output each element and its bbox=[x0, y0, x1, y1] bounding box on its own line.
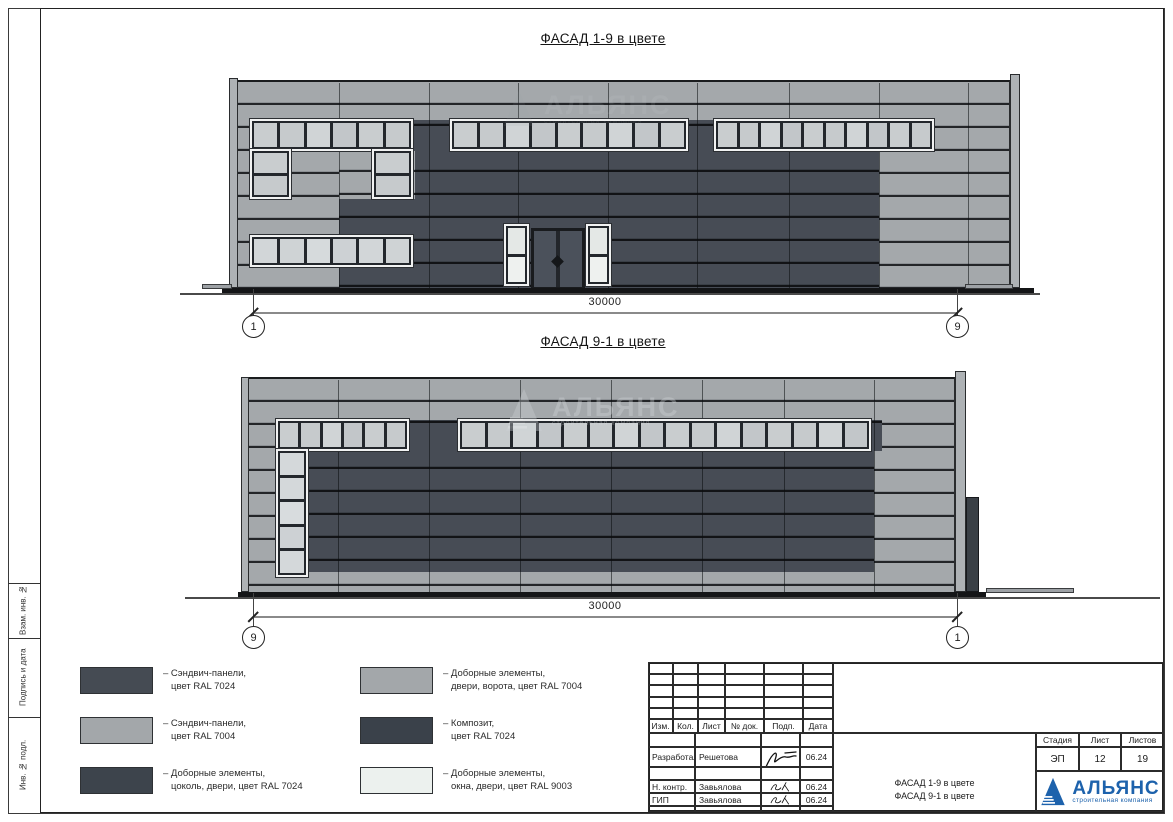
window-pane bbox=[344, 423, 362, 447]
stamp-signature-cell bbox=[761, 793, 800, 806]
facade-panel-dark bbox=[307, 451, 874, 572]
stamp-sheet-header: Лист bbox=[1079, 733, 1121, 747]
facade-top-title: ФАСАД 1-9 в цвете bbox=[438, 31, 768, 46]
change-table-cell bbox=[725, 697, 764, 708]
corner-trim bbox=[229, 78, 238, 288]
window-pane bbox=[333, 239, 356, 263]
window-band bbox=[250, 149, 291, 199]
stamp-empty-cell bbox=[800, 806, 833, 812]
legend-line1: – Доборные элементы, bbox=[443, 668, 545, 679]
window-band bbox=[250, 119, 413, 151]
window-pane bbox=[508, 228, 525, 254]
filing-column-divider-2 bbox=[8, 638, 40, 639]
window-pane bbox=[513, 423, 536, 447]
legend-line2: цвет RAL 7024 bbox=[443, 731, 643, 744]
dimension-line bbox=[253, 312, 957, 314]
window-pane bbox=[783, 123, 802, 147]
axis-marker: 9 bbox=[946, 315, 969, 338]
logo-name: АЛЬЯНС bbox=[1072, 780, 1159, 797]
change-table-header: № док. bbox=[725, 719, 764, 733]
window-band bbox=[372, 149, 413, 199]
window-pane bbox=[717, 423, 740, 447]
stamp-empty-cell bbox=[695, 806, 761, 812]
window-pane bbox=[280, 423, 298, 447]
legend-line2: цоколь, двери, цвет RAL 7024 bbox=[163, 781, 363, 794]
alliance-pyramid-icon bbox=[1040, 776, 1066, 807]
change-table-header: Лист bbox=[698, 719, 725, 733]
stamp-empty-cell bbox=[695, 767, 761, 780]
window-pane bbox=[804, 123, 823, 147]
change-table-cell bbox=[725, 708, 764, 719]
corner-trim bbox=[241, 377, 249, 592]
change-table-cell bbox=[698, 662, 725, 674]
stamp-empty-cell bbox=[761, 806, 800, 812]
change-table-cell bbox=[673, 674, 698, 685]
window-band bbox=[276, 419, 409, 451]
legend-line1: – Доборные элементы, bbox=[443, 768, 545, 779]
facade-panel-dark bbox=[408, 420, 460, 451]
door-handle bbox=[551, 255, 564, 268]
legend-line1: – Композит, bbox=[443, 718, 494, 729]
change-table-cell bbox=[803, 662, 833, 674]
legend-line2: двери, ворота, цвет RAL 7004 bbox=[443, 681, 643, 694]
window-pane bbox=[641, 423, 664, 447]
window-band bbox=[586, 224, 611, 286]
axis-marker: 9 bbox=[242, 626, 265, 649]
window-pane bbox=[539, 423, 562, 447]
window-pane bbox=[845, 423, 868, 447]
legend-line2: окна, двери, цвет RAL 9003 bbox=[443, 781, 643, 794]
legend-item-label: – Доборные элементы,двери, ворота, цвет … bbox=[443, 668, 643, 693]
change-table-header: Кол. bbox=[673, 719, 698, 733]
legend-item-label: – Доборные элементы,окна, двери, цвет RA… bbox=[443, 768, 643, 793]
panel-joint bbox=[429, 380, 430, 592]
legend-swatch bbox=[80, 767, 153, 794]
panel-joint bbox=[520, 380, 521, 592]
corner-trim bbox=[955, 371, 966, 592]
legend-line1: – Доборные элементы, bbox=[163, 768, 265, 779]
panel-joint bbox=[879, 83, 880, 288]
window-pane bbox=[307, 123, 330, 147]
window-pane bbox=[869, 123, 888, 147]
ramp bbox=[202, 284, 232, 289]
facade-bottom-title: ФАСАД 9-1 в цвете bbox=[438, 334, 768, 349]
stamp-name-cell: Решетова bbox=[695, 747, 761, 767]
window-pane bbox=[280, 527, 304, 549]
window-pane bbox=[615, 423, 638, 447]
legend-line1: – Сэндвич-панели, bbox=[163, 718, 246, 729]
stamp-sheet-value: 12 bbox=[1079, 747, 1121, 771]
window-pane bbox=[635, 123, 658, 147]
window-pane bbox=[590, 228, 607, 254]
window-pane bbox=[280, 478, 304, 500]
window-band bbox=[276, 449, 308, 577]
stamp-empty-cell bbox=[800, 767, 833, 780]
change-table-header: Подп. bbox=[764, 719, 803, 733]
window-pane bbox=[761, 123, 780, 147]
doc-title-line: ФАСАД 9-1 в цвете bbox=[894, 790, 974, 803]
stamp-name-cell: Завьялова bbox=[695, 793, 761, 806]
legend-item-label: – Композит,цвет RAL 7024 bbox=[443, 718, 643, 743]
stamp-doc-code-cell bbox=[833, 662, 1164, 733]
change-table-cell bbox=[803, 697, 833, 708]
window-pane bbox=[323, 423, 341, 447]
window-pane bbox=[280, 502, 304, 524]
change-table-cell bbox=[648, 697, 673, 708]
stamp-date-cell: 06.24 bbox=[800, 780, 833, 793]
change-table-cell bbox=[648, 685, 673, 697]
window-pane bbox=[564, 423, 587, 447]
window-pane bbox=[376, 153, 409, 173]
stamp-empty-cell bbox=[800, 733, 833, 747]
change-table-cell bbox=[725, 685, 764, 697]
legend-item-label: – Сэндвич-панели,цвет RAL 7004 bbox=[163, 718, 363, 743]
ramp bbox=[986, 588, 1074, 593]
window-pane bbox=[590, 257, 607, 283]
stamp-empty-cell bbox=[761, 733, 800, 747]
dimension-value: 30000 bbox=[545, 296, 665, 308]
stamp-empty-cell bbox=[761, 767, 800, 780]
legend-line2: цвет RAL 7004 bbox=[163, 731, 363, 744]
window-pane bbox=[583, 123, 606, 147]
window-pane bbox=[819, 423, 842, 447]
dimension-value: 30000 bbox=[545, 600, 665, 612]
window-pane bbox=[254, 239, 277, 263]
window-pane bbox=[740, 123, 759, 147]
legend-line1: – Сэндвич-панели, bbox=[163, 668, 246, 679]
change-table-cell bbox=[764, 685, 803, 697]
change-table-cell bbox=[648, 708, 673, 719]
legend-line2: цвет RAL 7024 bbox=[163, 681, 363, 694]
stamp-signature-cell bbox=[761, 747, 800, 767]
window-pane bbox=[768, 423, 791, 447]
change-table-cell bbox=[764, 708, 803, 719]
frame-label-vzam: Взам. инв. № bbox=[14, 585, 32, 636]
window-pane bbox=[826, 123, 845, 147]
window-pane bbox=[590, 423, 613, 447]
stamp-stage-value: ЭП bbox=[1036, 747, 1079, 771]
window-pane bbox=[890, 123, 909, 147]
stamp-empty-cell bbox=[648, 733, 695, 747]
window-pane bbox=[743, 423, 766, 447]
window-pane bbox=[365, 423, 383, 447]
company-logo: АЛЬЯНСстроительная компания bbox=[1040, 776, 1159, 807]
stamp-empty-cell bbox=[648, 767, 695, 780]
legend-swatch bbox=[360, 667, 433, 694]
change-table-header: Изм. bbox=[648, 719, 673, 733]
signature-icon bbox=[762, 747, 799, 767]
window-pane bbox=[254, 123, 277, 147]
window-pane bbox=[254, 176, 287, 196]
stamp-signature-cell bbox=[761, 780, 800, 793]
facade-side-block bbox=[966, 497, 979, 592]
logo-tagline: строительная компания bbox=[1072, 797, 1159, 804]
legend-swatch bbox=[360, 717, 433, 744]
window-band bbox=[504, 224, 529, 286]
window-pane bbox=[307, 239, 330, 263]
entrance-door bbox=[531, 228, 585, 290]
window-pane bbox=[387, 423, 405, 447]
change-table-cell bbox=[764, 697, 803, 708]
change-table-cell bbox=[673, 685, 698, 697]
window-pane bbox=[280, 123, 303, 147]
window-pane bbox=[301, 423, 319, 447]
window-pane bbox=[532, 123, 555, 147]
legend-item-label: – Доборные элементы,цоколь, двери, цвет … bbox=[163, 768, 363, 793]
filing-column-divider-1 bbox=[8, 583, 40, 584]
window-pane bbox=[692, 423, 715, 447]
stamp-empty-cell bbox=[648, 806, 695, 812]
dimension-leader-left bbox=[253, 593, 254, 626]
panel-joint bbox=[874, 380, 875, 592]
change-table-cell bbox=[673, 662, 698, 674]
window-band bbox=[450, 119, 688, 151]
legend-swatch bbox=[80, 717, 153, 744]
stamp-role-cell: Н. контр. bbox=[648, 780, 695, 793]
window-pane bbox=[280, 453, 304, 475]
window-pane bbox=[508, 257, 525, 283]
stamp-stage-header: Стадия bbox=[1036, 733, 1079, 747]
legend-swatch bbox=[360, 767, 433, 794]
stamp-sheets-value: 19 bbox=[1121, 747, 1164, 771]
frame-label-inv: Инв. № подл. bbox=[14, 719, 32, 810]
change-table-cell bbox=[764, 662, 803, 674]
window-pane bbox=[454, 123, 477, 147]
change-table-cell bbox=[698, 685, 725, 697]
window-pane bbox=[359, 239, 382, 263]
window-pane bbox=[462, 423, 485, 447]
dimension-leader-right bbox=[957, 593, 958, 626]
change-table-cell bbox=[803, 708, 833, 719]
panel-joint bbox=[429, 83, 430, 288]
window-pane bbox=[386, 239, 409, 263]
frame-label-podpis: Подпись и дата bbox=[14, 640, 32, 715]
window-pane bbox=[666, 423, 689, 447]
stamp-date-cell: 06.24 bbox=[800, 747, 833, 767]
window-pane bbox=[506, 123, 529, 147]
change-table-cell bbox=[698, 697, 725, 708]
stamp-empty-cell bbox=[695, 733, 761, 747]
change-table-cell bbox=[698, 674, 725, 685]
change-table-cell bbox=[803, 674, 833, 685]
stamp-logo-cell: АЛЬЯНСстроительная компания bbox=[1036, 771, 1164, 812]
change-table-cell bbox=[673, 697, 698, 708]
change-table-cell bbox=[725, 662, 764, 674]
change-table-cell bbox=[698, 708, 725, 719]
axis-marker: 1 bbox=[946, 626, 969, 649]
change-table-cell bbox=[673, 708, 698, 719]
window-pane bbox=[376, 176, 409, 196]
window-pane bbox=[280, 551, 304, 573]
panel-joint bbox=[789, 83, 790, 288]
change-table-cell bbox=[648, 662, 673, 674]
stamp-date-cell: 06.24 bbox=[800, 793, 833, 806]
panel-joint bbox=[338, 380, 339, 592]
window-pane bbox=[912, 123, 931, 147]
panel-joint bbox=[784, 380, 785, 592]
stamp-doc-title-cell: ФАСАД 1-9 в цветеФАСАД 9-1 в цвете bbox=[833, 733, 1036, 812]
window-band bbox=[714, 119, 934, 151]
stamp-sheets-header: Листов bbox=[1121, 733, 1164, 747]
window-pane bbox=[558, 123, 581, 147]
stamp-name-cell: Завьялова bbox=[695, 780, 761, 793]
window-pane bbox=[359, 123, 382, 147]
legend-item-label: – Сэндвич-панели,цвет RAL 7024 bbox=[163, 668, 363, 693]
window-pane bbox=[280, 239, 303, 263]
window-pane bbox=[609, 123, 632, 147]
change-table-cell bbox=[803, 685, 833, 697]
facade-panel-dark bbox=[686, 120, 715, 151]
dimension-line bbox=[253, 616, 957, 618]
axis-marker: 1 bbox=[242, 315, 265, 338]
stamp-role-cell: ГИП bbox=[648, 793, 695, 806]
window-pane bbox=[847, 123, 866, 147]
corner-trim bbox=[1010, 74, 1020, 288]
filing-column-divider-3 bbox=[8, 717, 40, 718]
window-pane bbox=[386, 123, 409, 147]
window-pane bbox=[661, 123, 684, 147]
panel-joint bbox=[697, 83, 698, 288]
facade-panel-dark bbox=[413, 120, 452, 151]
ground-line bbox=[180, 293, 1040, 295]
change-table-header: Дата bbox=[803, 719, 833, 733]
panel-joint bbox=[611, 380, 612, 592]
signature-icon bbox=[762, 793, 799, 806]
change-table-cell bbox=[725, 674, 764, 685]
panel-joint bbox=[702, 380, 703, 592]
drawing-sheet: Взам. инв. № Подпись и дата Инв. № подл.… bbox=[0, 0, 1173, 822]
panel-joint bbox=[968, 83, 969, 288]
window-pane bbox=[718, 123, 737, 147]
window-pane bbox=[480, 123, 503, 147]
change-table-cell bbox=[764, 674, 803, 685]
window-pane bbox=[794, 423, 817, 447]
window-band bbox=[250, 235, 413, 267]
ramp bbox=[965, 284, 1013, 289]
legend-swatch bbox=[80, 667, 153, 694]
ground-line bbox=[185, 597, 1160, 599]
window-band bbox=[458, 419, 871, 451]
window-pane bbox=[333, 123, 356, 147]
window-pane bbox=[488, 423, 511, 447]
window-pane bbox=[254, 153, 287, 173]
stamp-role-cell: Разработал bbox=[648, 747, 695, 767]
signature-icon bbox=[762, 780, 799, 793]
doc-title-line: ФАСАД 1-9 в цвете bbox=[894, 777, 974, 790]
change-table-cell bbox=[648, 674, 673, 685]
